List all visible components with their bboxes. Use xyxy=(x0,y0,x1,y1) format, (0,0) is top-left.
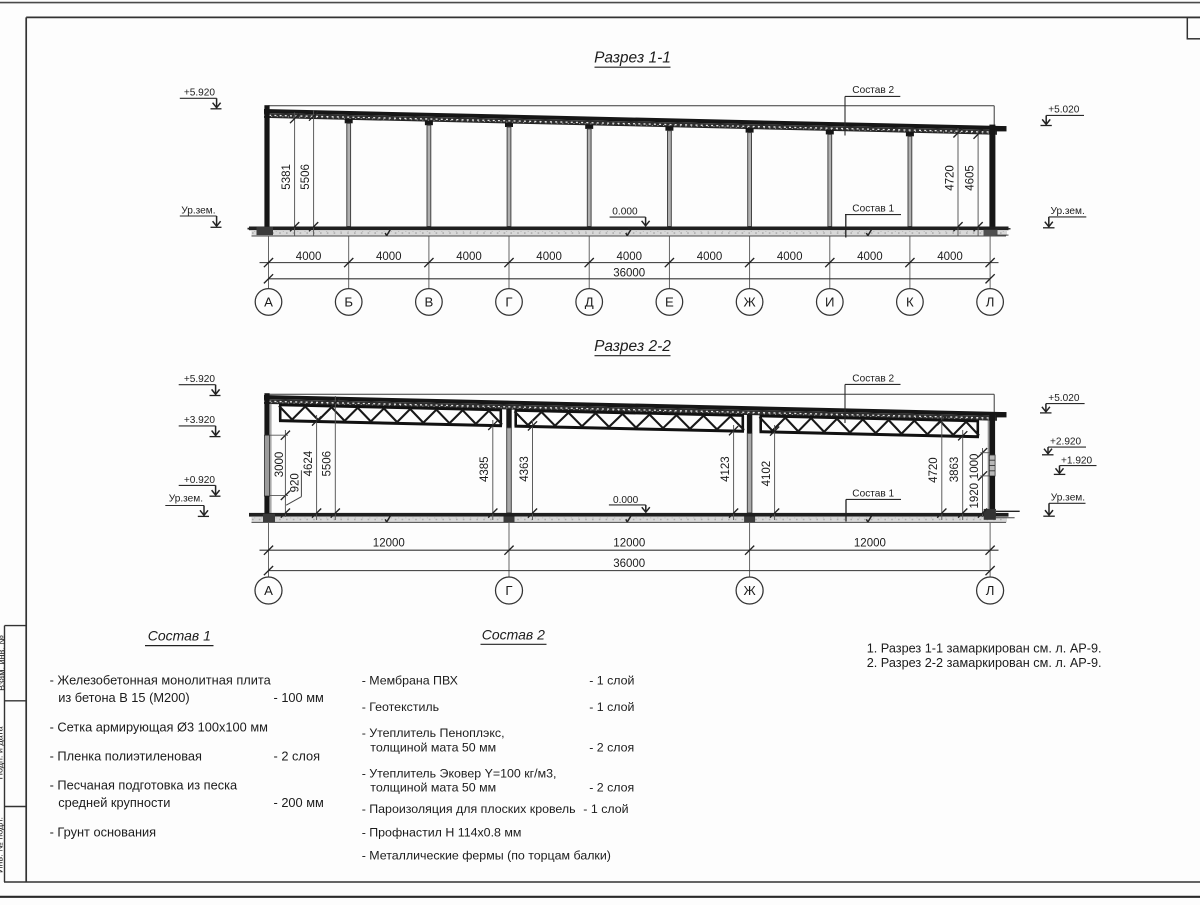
svg-text:4385: 4385 xyxy=(479,456,491,482)
svg-text:А: А xyxy=(264,295,273,310)
svg-text:3863: 3863 xyxy=(949,457,961,483)
svg-text:- 1 слой: - 1 слой xyxy=(589,674,634,688)
svg-text:Г: Г xyxy=(505,295,512,310)
svg-text:И: И xyxy=(825,295,834,310)
svg-text:Состав 2: Состав 2 xyxy=(852,373,894,384)
svg-text:12000: 12000 xyxy=(613,538,645,550)
svg-text:Разрез 2-2: Разрез 2-2 xyxy=(594,338,671,355)
svg-text:- Утеплитель Пеноплэкс,: - Утеплитель Пеноплэкс, xyxy=(362,726,505,740)
svg-text:4102: 4102 xyxy=(761,461,773,487)
svg-text:1920: 1920 xyxy=(969,483,981,509)
svg-text:- Пленка полиэтиленовая: - Пленка полиэтиленовая xyxy=(50,749,202,764)
svg-text:К: К xyxy=(906,295,914,310)
svg-text:Подп. и дата: Подп. и дата xyxy=(0,726,4,779)
svg-text:12000: 12000 xyxy=(373,538,405,550)
svg-text:4000: 4000 xyxy=(296,251,322,263)
svg-text:- 100 мм: - 100 мм xyxy=(274,690,324,705)
svg-text:4000: 4000 xyxy=(536,251,562,263)
svg-text:4000: 4000 xyxy=(456,251,482,263)
svg-text:- Сетка армирующая Ø3 100х100: - Сетка армирующая Ø3 100х100 мм xyxy=(50,720,268,735)
svg-text:из бетона В 15 (М200): из бетона В 15 (М200) xyxy=(58,690,189,705)
svg-text:12000: 12000 xyxy=(854,538,886,550)
svg-text:Л: Л xyxy=(986,295,995,310)
svg-text:Состав 2: Состав 2 xyxy=(482,627,545,643)
svg-text:Состав 1: Состав 1 xyxy=(852,488,894,499)
svg-text:5381: 5381 xyxy=(281,164,293,190)
svg-text:Ж: Ж xyxy=(744,295,756,310)
svg-text:+5.020: +5.020 xyxy=(1048,105,1080,116)
svg-text:Состав 1: Состав 1 xyxy=(852,203,894,214)
svg-text:А: А xyxy=(264,583,273,598)
svg-text:3000: 3000 xyxy=(274,452,286,478)
svg-text:Взам. инв. №: Взам. инв. № xyxy=(0,635,6,691)
svg-text:- 200 мм: - 200 мм xyxy=(274,795,324,810)
svg-text:+5.920: +5.920 xyxy=(184,87,216,98)
svg-text:5506: 5506 xyxy=(322,451,334,477)
svg-text:Ур.зем.: Ур.зем. xyxy=(181,205,215,216)
svg-text:- 1 слой: - 1 слой xyxy=(589,700,634,714)
svg-text:+2.920: +2.920 xyxy=(1050,436,1082,447)
svg-text:4000: 4000 xyxy=(376,251,402,263)
svg-text:- Профнастил Н 114х0.8 мм: - Профнастил Н 114х0.8 мм xyxy=(362,826,522,840)
svg-text:толщиной мата 50 мм: толщиной мата 50 мм xyxy=(370,781,496,795)
svg-text:толщиной мата 50 мм: толщиной мата 50 мм xyxy=(370,741,496,755)
svg-text:4000: 4000 xyxy=(697,251,723,263)
svg-text:4624: 4624 xyxy=(303,450,315,476)
svg-text:- Металлические фермы (по торц: - Металлические фермы (по торцам балки) xyxy=(362,849,611,863)
svg-text:4363: 4363 xyxy=(519,456,531,482)
svg-text:Ур.зем.: Ур.зем. xyxy=(169,494,203,505)
svg-text:- 2 слоя: - 2 слоя xyxy=(589,741,634,755)
svg-text:4000: 4000 xyxy=(937,251,963,263)
svg-text:5506: 5506 xyxy=(300,164,312,190)
svg-text:+5.920: +5.920 xyxy=(184,374,216,385)
svg-text:4605: 4605 xyxy=(965,165,977,191)
svg-text:1000: 1000 xyxy=(969,454,981,480)
svg-text:+3.920: +3.920 xyxy=(184,415,216,426)
svg-text:1. Разрез 1-1 замаркирован см.: 1. Разрез 1-1 замаркирован см. л. АР-9. xyxy=(867,641,1102,655)
svg-text:+0.920: +0.920 xyxy=(184,475,216,486)
svg-text:Разрез 1-1: Разрез 1-1 xyxy=(594,50,671,67)
svg-text:4123: 4123 xyxy=(720,456,732,482)
svg-text:4000: 4000 xyxy=(857,251,883,263)
svg-text:В: В xyxy=(425,295,434,310)
svg-text:- 2 слоя: - 2 слоя xyxy=(589,781,634,795)
svg-text:Б: Б xyxy=(344,295,353,310)
svg-text:Г: Г xyxy=(505,583,512,598)
svg-text:+5.020: +5.020 xyxy=(1048,393,1080,404)
svg-text:- Геотекстиль: - Геотекстиль xyxy=(362,700,439,714)
svg-text:- Пароизоляция для плоских кро: - Пароизоляция для плоских кровель xyxy=(362,802,576,816)
svg-text:36000: 36000 xyxy=(613,267,645,279)
svg-text:- 1 слой: - 1 слой xyxy=(583,802,628,816)
svg-text:- Железобетонная монолитная п: - Железобетонная монолитная плита xyxy=(50,673,272,688)
svg-text:Ж: Ж xyxy=(744,583,756,598)
svg-text:Л: Л xyxy=(986,583,995,598)
svg-text:- 2 слоя: - 2 слоя xyxy=(274,749,321,764)
svg-text:Е: Е xyxy=(665,295,674,310)
svg-text:Инв. № подл.: Инв. № подл. xyxy=(0,817,4,873)
svg-text:920: 920 xyxy=(289,473,301,492)
svg-text:0.000: 0.000 xyxy=(612,206,638,217)
svg-text:- Песчаная подготовка из песка: - Песчаная подготовка из песка xyxy=(50,778,238,793)
svg-text:средней крупности: средней крупности xyxy=(58,795,170,810)
svg-text:- Грунт основания: - Грунт основания xyxy=(50,825,157,840)
svg-text:4720: 4720 xyxy=(944,165,956,191)
svg-text:Состав 2: Состав 2 xyxy=(852,85,894,96)
svg-text:Ур.зем.: Ур.зем. xyxy=(1051,206,1085,217)
svg-text:Ур.зем.: Ур.зем. xyxy=(1051,493,1085,504)
svg-text:Д: Д xyxy=(585,295,594,310)
svg-text:2. Разрез 2-2 замаркирован см.: 2. Разрез 2-2 замаркирован см. л. АР-9. xyxy=(867,656,1102,670)
svg-text:4720: 4720 xyxy=(928,457,940,483)
svg-text:Состав 1: Состав 1 xyxy=(148,628,211,644)
svg-text:4000: 4000 xyxy=(617,251,643,263)
svg-text:4000: 4000 xyxy=(777,251,803,263)
svg-text:- Утеплитель Эковер Y=100 кг/м: - Утеплитель Эковер Y=100 кг/м3, xyxy=(362,767,557,781)
svg-text:36000: 36000 xyxy=(613,558,645,570)
svg-text:- Мембрана ПВХ: - Мембрана ПВХ xyxy=(362,674,458,688)
